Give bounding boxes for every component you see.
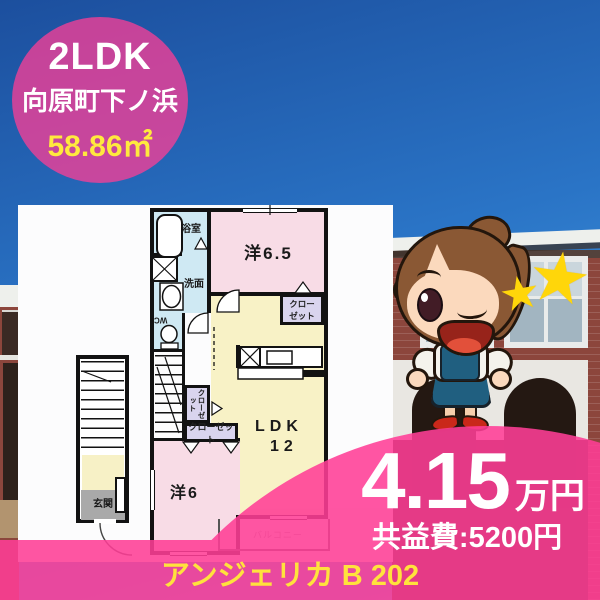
eyebrow [417, 270, 441, 285]
eye-highlight [421, 293, 428, 302]
sill-left [0, 355, 19, 360]
ldk-label: LDK [255, 419, 303, 436]
window-left [2, 310, 19, 357]
western-room-6-label: 洋6 [170, 486, 199, 503]
building-photo-left [0, 285, 19, 600]
real-estate-agent-mascot [393, 216, 533, 431]
washroom-label: 洗面 [184, 280, 204, 291]
tongue [447, 338, 481, 354]
doorway-left [3, 363, 19, 500]
balcony-label: バルコニー [253, 531, 303, 540]
property-badge: 2LDK 向原町下ノ浜 58.86㎡ [12, 17, 188, 183]
rent-unit: 万円 [515, 468, 585, 519]
shoe-right [460, 415, 489, 433]
rent-price: 4.15 万円 [348, 441, 598, 521]
eave-left [0, 285, 19, 307]
common-fee: 共益費:5200円 [352, 514, 582, 556]
fist-right [489, 368, 512, 390]
floor-area: 58.86㎡ [47, 121, 152, 165]
bath-label: 浴室 [181, 225, 201, 236]
eye-open [417, 288, 443, 322]
western-room-65-label: 洋6.5 [221, 245, 316, 263]
rent-value: 4.15 [361, 441, 509, 521]
rental-listing-flyer: クロー ゼット クローゼット クローゼット 玄関 [0, 0, 600, 600]
floorplan-panel: クロー ゼット クローゼット クローゼット 玄関 [18, 205, 393, 562]
location-name: 向原町下ノ浜 [22, 81, 178, 118]
ldk-size-label: 12 [270, 439, 298, 456]
star-icon: ★ [495, 267, 544, 319]
fist-left [406, 368, 429, 390]
floorplan-detail-drawing [18, 205, 393, 562]
property-name: アンジェリカ B 202 [125, 552, 455, 594]
wc-label: WC [154, 315, 167, 323]
shoe-left [430, 415, 459, 433]
layout-type: 2LDK [48, 36, 151, 79]
fence-left [0, 500, 19, 538]
